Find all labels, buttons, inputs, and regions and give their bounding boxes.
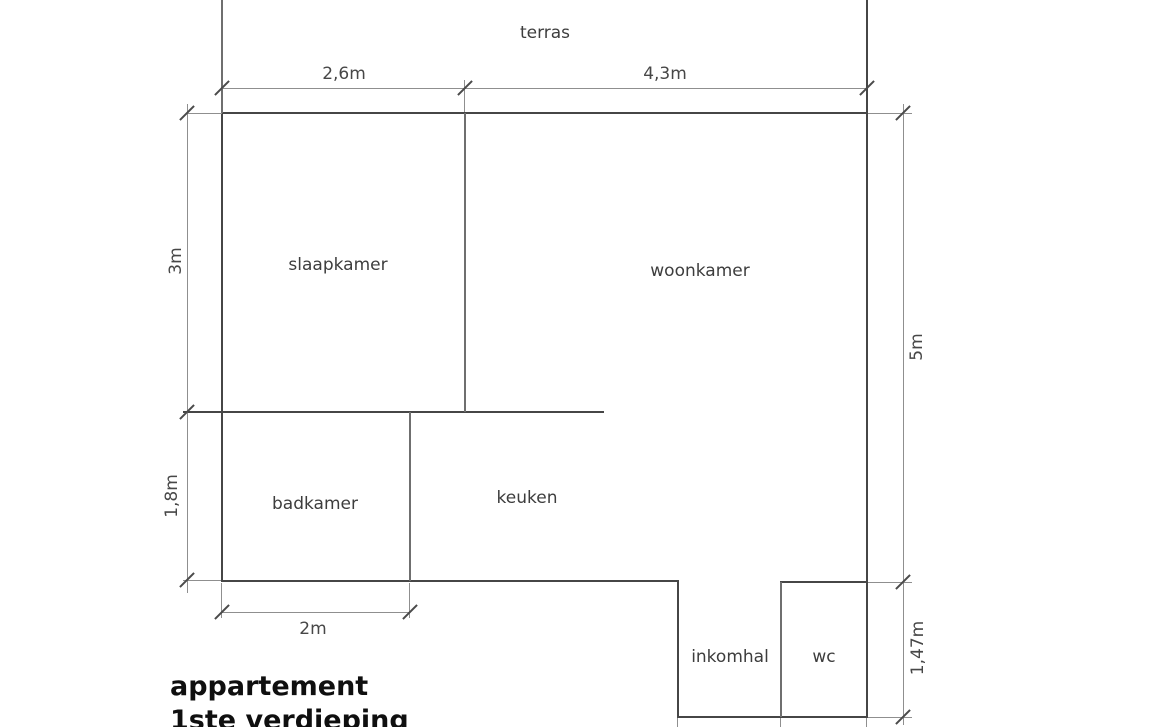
partition-slaapkamer	[464, 113, 466, 412]
dim-ext-right-top	[868, 113, 912, 114]
wall-left	[221, 112, 223, 582]
wall-bottom-main	[221, 580, 679, 582]
drawing-title-line2: 1ste verdieping	[170, 704, 409, 727]
dim-line-left	[187, 104, 188, 593]
dim-ext-left-bottom	[183, 580, 221, 581]
room-label-terras: terras	[520, 23, 570, 43]
wall-wc-top	[780, 581, 868, 583]
floor-plan: terras slaapkamer woonkamer badkamer keu…	[0, 0, 1152, 727]
room-label-inkomhal: inkomhal	[691, 647, 769, 667]
dim-label-badkamer-height: 1,8m	[162, 474, 182, 518]
room-label-woonkamer: woonkamer	[650, 261, 749, 281]
dim-stub-bottom-a	[677, 718, 678, 727]
dim-label-top-left: 2,6m	[322, 64, 366, 84]
drawing-title-line1: appartement	[170, 670, 409, 704]
room-label-keuken: keuken	[497, 488, 558, 508]
room-label-wc: wc	[812, 647, 835, 667]
dim-line-2m	[222, 612, 410, 613]
drawing-title: appartement 1ste verdieping	[170, 670, 409, 727]
wall-slaapkamer-bottom	[183, 411, 604, 413]
dim-ext-right-bottom	[868, 717, 912, 718]
terras-left-boundary	[221, 0, 223, 113]
wall-top	[221, 112, 868, 114]
dim-label-apartment-height: 5m	[907, 333, 927, 360]
dim-stub-bottom-b	[780, 718, 781, 727]
wall-right	[866, 0, 868, 718]
dim-label-badkamer-width: 2m	[299, 619, 326, 639]
dim-line-right	[903, 104, 904, 725]
room-label-slaapkamer: slaapkamer	[288, 255, 387, 275]
wall-hall-bottom	[677, 716, 868, 718]
dim-ext-left-top	[187, 113, 222, 114]
dim-label-hall-height: 1,47m	[908, 621, 928, 675]
wall-inkomhal-left	[677, 580, 679, 718]
partition-badkamer	[409, 412, 411, 581]
dim-ext-right-mid	[868, 582, 912, 583]
dim-label-top-right: 4,3m	[643, 64, 687, 84]
dim-label-slaapkamer-height: 3m	[166, 247, 186, 274]
partition-wc-left	[780, 582, 782, 717]
dim-stub-bottom-c	[866, 718, 867, 727]
room-label-badkamer: badkamer	[272, 494, 358, 514]
dim-line-top	[222, 88, 867, 89]
